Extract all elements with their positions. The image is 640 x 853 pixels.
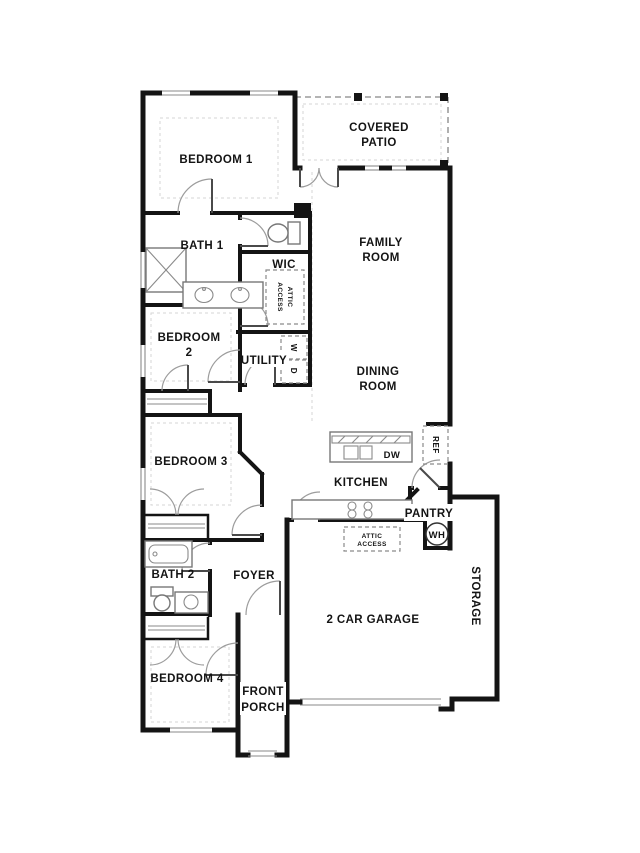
room-label-foyer: FOYER — [233, 570, 275, 582]
closet-bedroom4 — [145, 618, 208, 639]
room-label-bedroom-3: BEDROOM 3 — [154, 456, 227, 468]
porch-steps — [248, 751, 277, 756]
room-label-utility: UTILITY — [241, 355, 287, 367]
double-vanity-fixture — [183, 282, 263, 308]
door-patio-right — [319, 168, 338, 187]
window — [365, 164, 379, 172]
door-bedroom4 — [206, 643, 238, 675]
door-patio-left — [300, 168, 319, 187]
room-label-bath-2: BATH 2 — [151, 569, 194, 581]
window — [162, 89, 190, 97]
patio-post — [440, 93, 448, 101]
door-closet3-left — [150, 489, 176, 515]
door-bedroom3 — [232, 505, 262, 535]
room-label-pantry: PANTRY — [405, 508, 453, 520]
door-closet4-left — [150, 639, 176, 665]
window — [170, 726, 212, 734]
label-washer: W — [289, 344, 298, 352]
door-closet2 — [162, 365, 188, 391]
label-wic-attic-line1: ATTIC — [286, 287, 293, 308]
label-dryer: D — [289, 368, 298, 374]
room-label-bedroom-4: BEDROOM 4 — [150, 673, 223, 685]
closet-bedroom2 — [147, 399, 207, 404]
windows — [139, 89, 406, 734]
room-label-front-porch-line1: FRONT — [242, 686, 284, 698]
label-wic-attic-line2: ACCESS — [276, 282, 283, 312]
closet-bedroom3 — [145, 515, 208, 538]
door-closet3-right — [178, 489, 204, 515]
toilet-fixture — [151, 587, 173, 611]
patio-post — [354, 93, 362, 101]
room-label-garage: 2 CAR GARAGE — [327, 614, 420, 626]
kitchen-counter — [292, 500, 412, 519]
label-ref: REF — [431, 436, 440, 454]
window — [250, 89, 278, 97]
shower-fixture — [146, 248, 186, 292]
room-label-bedroom-2-line2: 2 — [186, 347, 193, 359]
room-label-wic: WIC — [272, 259, 296, 271]
window — [139, 345, 147, 377]
room-labels: BEDROOM 1 COVERED PATIO FAMILY ROOM BATH… — [150, 122, 481, 714]
label-dw: DW — [384, 450, 401, 461]
window — [139, 468, 147, 500]
room-label-dining-line2: ROOM — [359, 381, 396, 393]
room-label-family-room-line2: ROOM — [362, 252, 399, 264]
door-toilet-room — [240, 218, 268, 246]
room-label-front-porch-line2: PORCH — [241, 702, 285, 714]
label-garage-attic-line2: ACCESS — [357, 541, 387, 548]
door-closet4-right — [178, 639, 204, 665]
room-label-dining-line1: DINING — [357, 366, 400, 378]
label-wh: WH — [429, 530, 446, 541]
door-bedroom1 — [178, 179, 212, 213]
room-label-storage: STORAGE — [469, 566, 481, 625]
door-bedroom2 — [208, 350, 240, 382]
room-label-kitchen: KITCHEN — [334, 477, 388, 489]
room-label-bedroom-2-line1: BEDROOM — [158, 332, 221, 344]
tub-fixture — [145, 541, 192, 567]
room-label-bedroom-1: BEDROOM 1 — [179, 154, 252, 166]
window — [392, 164, 406, 172]
exterior-walls — [143, 93, 497, 755]
room-label-covered-patio-line1: COVERED — [349, 122, 409, 134]
room-label-family-room-line1: FAMILY — [359, 237, 403, 249]
floor-plan-svg: BEDROOM 1 COVERED PATIO FAMILY ROOM BATH… — [0, 0, 640, 853]
label-garage-attic-line1: ATTIC — [362, 533, 383, 540]
door-front-entry — [246, 581, 280, 615]
toilet-fixture — [268, 222, 300, 244]
garage-door — [300, 699, 441, 705]
sink-vanity-fixture — [175, 592, 208, 613]
room-label-bath-1: BATH 1 — [180, 240, 223, 252]
floor-plan-page: BEDROOM 1 COVERED PATIO FAMILY ROOM BATH… — [0, 0, 640, 853]
room-label-covered-patio-line2: PATIO — [361, 137, 396, 149]
